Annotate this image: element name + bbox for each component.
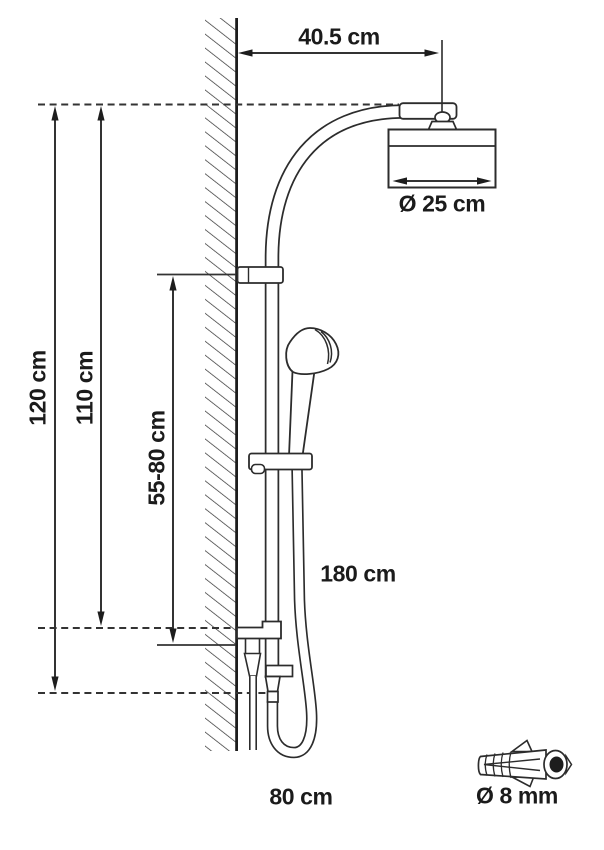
dimension-label-upper-height: 110 cm: [72, 351, 99, 425]
dimension-label-anchor-diameter: Ø 8 mm: [476, 783, 558, 810]
dimension-label-wall-offset: 40.5 cm: [298, 24, 380, 51]
supply-escutcheon: [245, 654, 261, 677]
dimension-120cm: [51, 106, 58, 691]
hand-shower-handle: [289, 368, 315, 457]
wall-hatch: [205, 18, 237, 751]
dimension-label-slider-range: 55-80 cm: [144, 410, 171, 505]
diagram-page: 40.5 cm Ø 25 cm 120 cm 110 cm 55-80 cm 1…: [0, 0, 604, 850]
hose-stem: [268, 692, 279, 703]
hand-shower-head: [286, 328, 338, 374]
dimension-label-head-diameter: Ø 25 cm: [399, 191, 486, 218]
wall-anchor-drawing: [478, 741, 571, 787]
top-wall-bracket: [238, 267, 284, 283]
dimension-label-hose-length: 180 cm: [320, 561, 396, 588]
hose-cone-nut: [266, 677, 281, 692]
bottom-wall-bracket: [237, 622, 281, 639]
anchor-upper-wing: [512, 741, 532, 752]
overhead-shower-head: [389, 130, 496, 188]
dimension-label-total-height: 120 cm: [25, 350, 52, 426]
slider-knob: [252, 465, 265, 474]
hose-outlet: [266, 666, 293, 677]
head-connector-nut: [429, 122, 457, 130]
anchor-hole: [550, 757, 564, 773]
dimension-label-supply-height: 80 cm: [269, 784, 332, 811]
